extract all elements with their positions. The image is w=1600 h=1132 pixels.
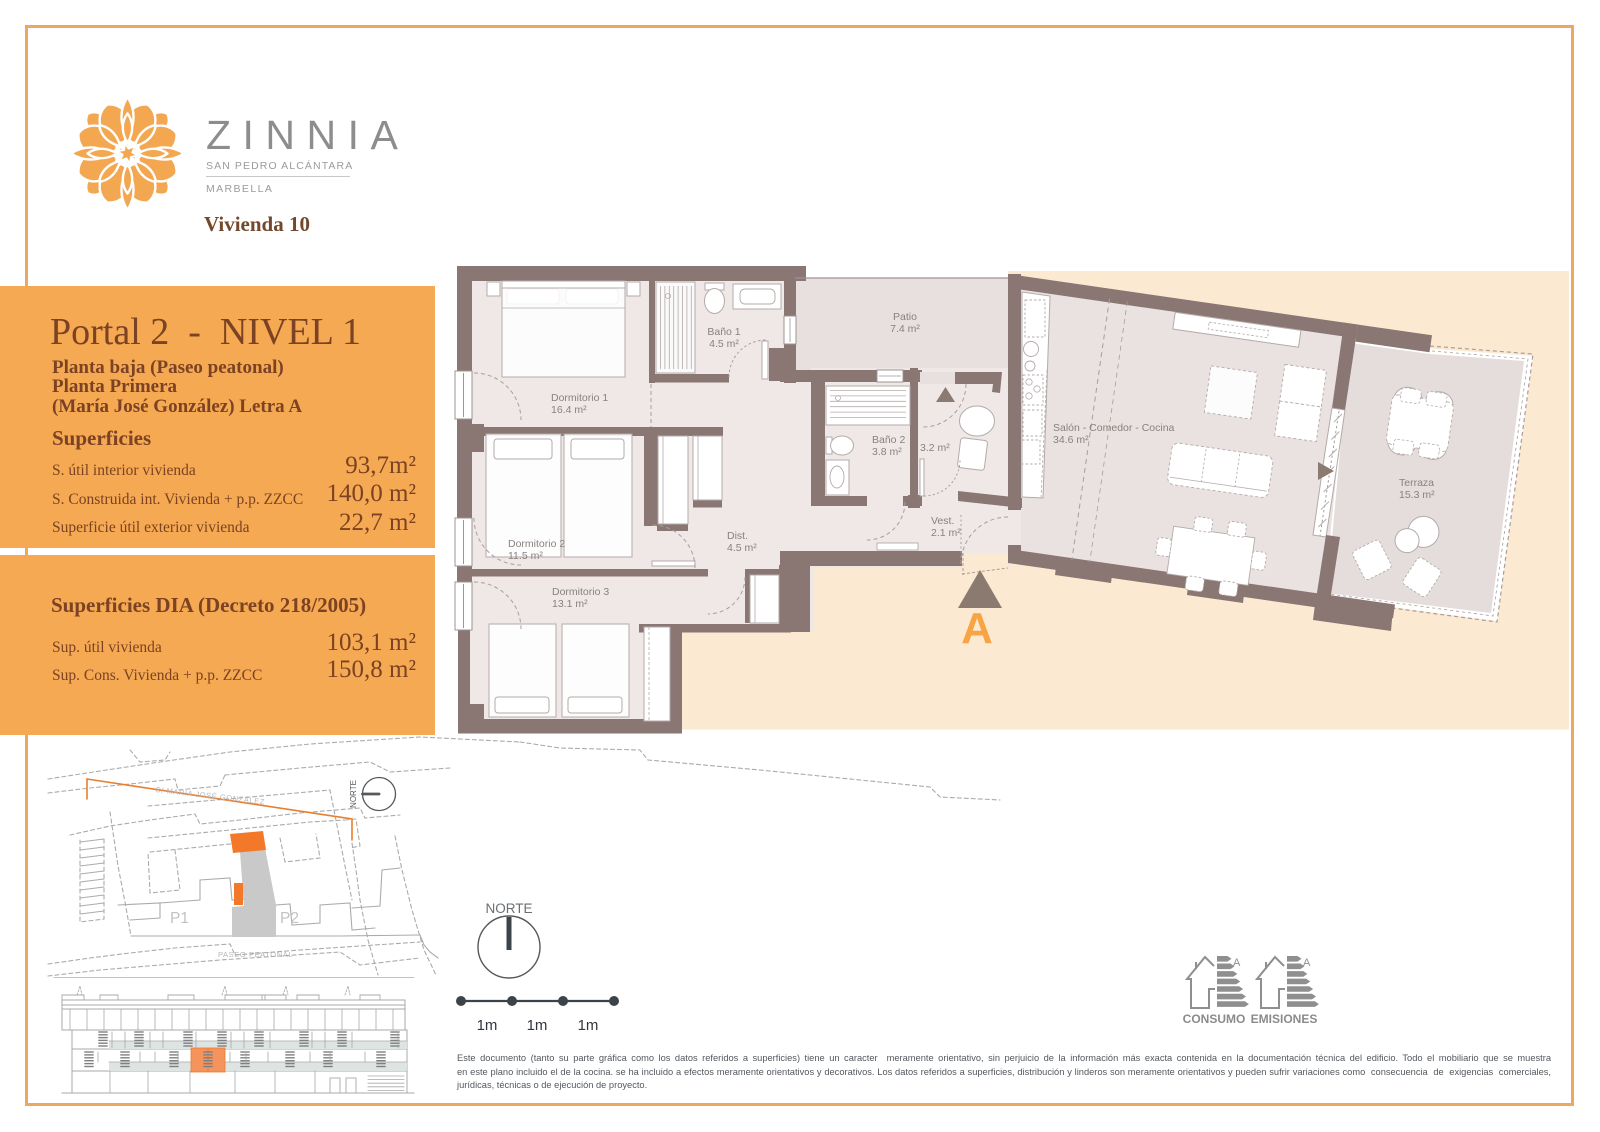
svg-text:4.5 m²: 4.5 m²: [727, 542, 757, 554]
svg-text:Dormitorio 2: Dormitorio 2: [508, 538, 565, 550]
svg-text:34.6 m²: 34.6 m²: [1053, 434, 1089, 446]
svg-text:CONSUMO: CONSUMO: [1183, 1012, 1246, 1026]
svg-text:EMISIONES: EMISIONES: [1251, 1012, 1318, 1026]
svg-text:A: A: [1303, 957, 1311, 969]
svg-text:Terraza: Terraza: [1399, 477, 1434, 489]
svg-text:15.3 m²: 15.3 m²: [1399, 489, 1435, 501]
svg-text:3.2 m²: 3.2 m²: [920, 442, 950, 454]
svg-text:A: A: [961, 604, 993, 653]
svg-text:2.1 m²: 2.1 m²: [931, 527, 961, 539]
svg-text:7.4 m²: 7.4 m²: [890, 323, 920, 335]
svg-text:Patio: Patio: [893, 311, 917, 323]
svg-text:Dormitorio 3: Dormitorio 3: [552, 586, 609, 598]
svg-text:16.4 m²: 16.4 m²: [551, 404, 587, 416]
svg-text:13.1 m²: 13.1 m²: [552, 598, 588, 610]
svg-text:11.5 m²: 11.5 m²: [508, 550, 543, 562]
svg-text:A: A: [1233, 957, 1241, 969]
svg-text:Baño 2: Baño 2: [872, 434, 905, 446]
svg-text:Dist.: Dist.: [727, 530, 748, 542]
svg-text:NORTE: NORTE: [485, 901, 532, 916]
svg-text:3.8 m²: 3.8 m²: [872, 446, 902, 458]
svg-text:Dormitorio 1: Dormitorio 1: [551, 392, 608, 404]
svg-text:1m: 1m: [477, 1017, 498, 1034]
svg-text:4.5 m²: 4.5 m²: [709, 338, 739, 350]
svg-text:P2: P2: [280, 910, 299, 927]
svg-text:1m: 1m: [527, 1017, 548, 1034]
svg-text:NORTE: NORTE: [349, 780, 358, 808]
svg-text:1m: 1m: [578, 1017, 599, 1034]
svg-text:P1: P1: [170, 910, 189, 927]
svg-text:Baño 1: Baño 1: [707, 326, 740, 338]
svg-text:Vest.: Vest.: [931, 515, 954, 527]
svg-text:Salón - Comedor - Cocina: Salón - Comedor - Cocina: [1053, 422, 1175, 434]
svg-text:C/ MARIA JOSÉ GONZÁLEZ: C/ MARIA JOSÉ GONZÁLEZ: [155, 785, 266, 806]
